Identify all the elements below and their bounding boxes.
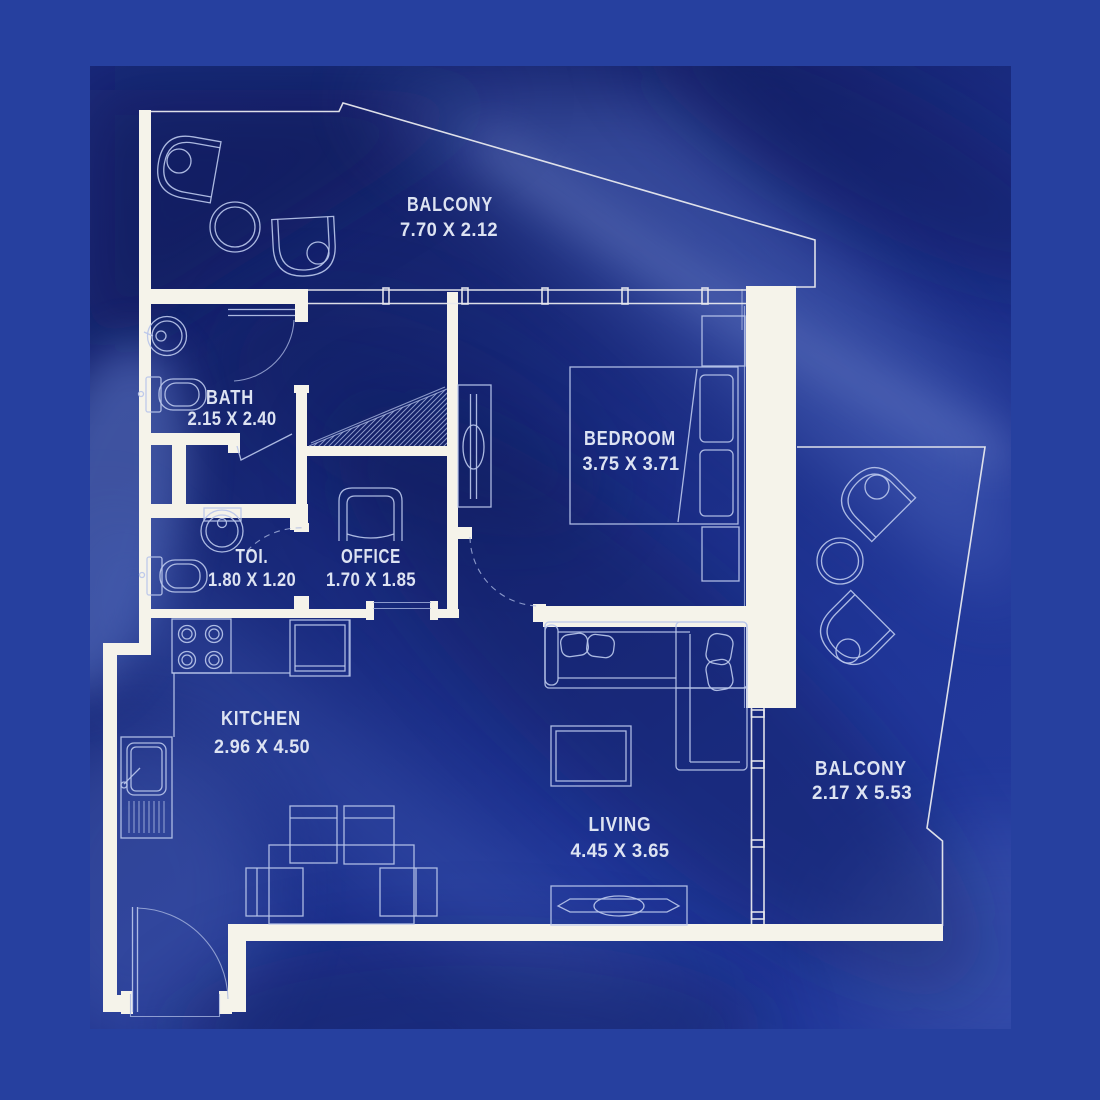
svg-text:OFFICE: OFFICE [341,546,401,568]
svg-text:7.70 X 2.12: 7.70 X 2.12 [400,220,498,241]
svg-text:1.70 X 1.85: 1.70 X 1.85 [326,570,416,591]
svg-text:KITCHEN: KITCHEN [221,708,301,730]
svg-text:BATH: BATH [206,387,254,409]
svg-text:BALCONY: BALCONY [815,758,907,780]
svg-text:4.45 X 3.65: 4.45 X 3.65 [571,841,670,862]
svg-text:TOI.: TOI. [236,546,269,568]
svg-text:BEDROOM: BEDROOM [584,428,676,450]
svg-text:1.80 X 1.20: 1.80 X 1.20 [208,570,296,591]
svg-text:BALCONY: BALCONY [407,194,493,216]
svg-text:LIVING: LIVING [589,814,652,836]
svg-text:2.15 X 2.40: 2.15 X 2.40 [188,409,277,430]
svg-text:2.96 X 4.50: 2.96 X 4.50 [214,737,310,758]
svg-text:3.75 X 3.71: 3.75 X 3.71 [583,454,680,475]
svg-text:2.17 X 5.53: 2.17 X 5.53 [812,783,912,804]
